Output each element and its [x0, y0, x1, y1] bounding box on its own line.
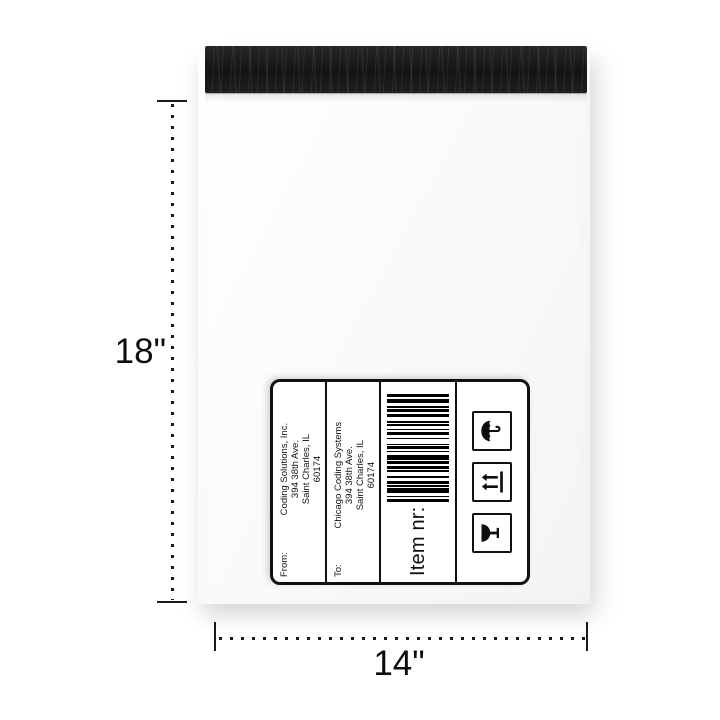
width-dimension-line [219, 637, 585, 640]
from-line-4: 60174 [312, 456, 323, 482]
from-line-2: 394 38th Ave. [290, 440, 301, 498]
from-line-3: Saint Charles, IL [301, 434, 312, 504]
to-address-section: To: Chicago Coding Systems 394 38th Ave.… [327, 382, 381, 582]
height-dimension-tick-bottom [157, 601, 187, 603]
to-line-4: 60174 [366, 462, 377, 488]
handling-icons-section [457, 382, 527, 582]
from-line-1: Coding Solutions, Inc. [279, 423, 290, 515]
barcode [387, 394, 449, 502]
to-line-1: Chicago Coding Systems [333, 422, 344, 529]
to-line-3: Saint Charles, IL [355, 440, 366, 510]
to-prefix: To: [333, 564, 377, 577]
height-dimension-tick-top [157, 100, 187, 102]
keep-dry-umbrella-icon [472, 411, 512, 451]
to-line-2: 394 38th Ave. [344, 446, 355, 504]
width-dimension-tick-right [586, 622, 588, 651]
seal-strip [205, 46, 587, 93]
from-address-section: From: Coding Solutions, Inc. 394 38th Av… [273, 382, 327, 582]
to-address: Chicago Coding Systems 394 38th Ave. Sai… [333, 388, 377, 562]
product-dimension-illustration: From: Coding Solutions, Inc. 394 38th Av… [0, 0, 720, 720]
shipping-label: From: Coding Solutions, Inc. 394 38th Av… [270, 379, 530, 585]
fragile-glass-icon [472, 513, 512, 553]
this-way-up-icon [472, 462, 512, 502]
from-prefix: From: [279, 552, 323, 577]
width-dimension-tick-left [214, 622, 216, 651]
height-dimension-line [171, 104, 174, 600]
width-dimension-label: 14" [356, 646, 442, 681]
seal-strip-shadow [205, 93, 587, 102]
height-dimension-label: 18" [94, 334, 166, 369]
item-number-section: Item nr: [381, 382, 457, 582]
from-address: Coding Solutions, Inc. 394 38th Ave. Sai… [279, 388, 323, 550]
item-number-label: Item nr: [407, 507, 430, 576]
